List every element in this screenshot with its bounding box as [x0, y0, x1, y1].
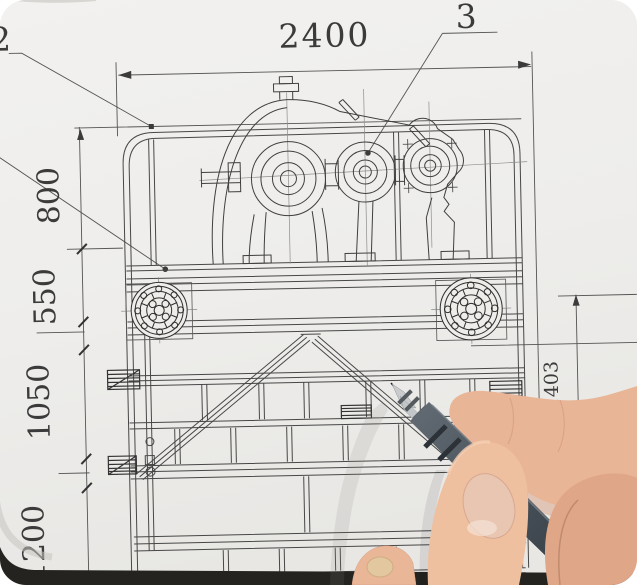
dim-2400-label: 2400	[278, 15, 371, 56]
callout-2-label: 2	[0, 19, 11, 58]
callout-2-dot	[149, 124, 154, 129]
middle-fingernail	[367, 557, 393, 577]
thumb-nail-lunula	[467, 520, 497, 536]
drawing-photo-canvas: 2400 2 3 800 550 1050 1200 1403	[0, 0, 637, 585]
photo-of-engineering-drawing: 2400 2 3 800 550 1050 1200 1403	[0, 0, 637, 585]
dim-550-label: 550	[27, 268, 63, 326]
dim-800-label: 800	[31, 167, 67, 225]
callout-3-label: 3	[455, 0, 477, 36]
dim-1050-label: 1050	[21, 363, 58, 440]
